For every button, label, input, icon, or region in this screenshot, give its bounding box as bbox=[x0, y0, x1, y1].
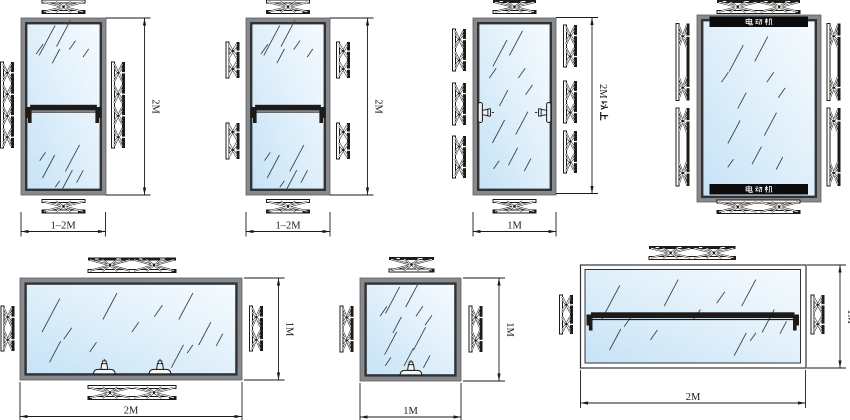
svg-text:2M: 2M bbox=[150, 99, 161, 114]
svg-text:1M: 1M bbox=[403, 406, 418, 417]
svg-text:1M: 1M bbox=[504, 322, 515, 337]
svg-text:2M: 2M bbox=[373, 99, 384, 114]
svg-text:1M: 1M bbox=[845, 309, 850, 324]
svg-text:2M: 2M bbox=[686, 392, 701, 403]
svg-text:2M: 2M bbox=[597, 84, 608, 99]
svg-text:2M: 2M bbox=[124, 406, 139, 417]
svg-text:1M: 1M bbox=[507, 221, 522, 232]
svg-text:1–2M: 1–2M bbox=[275, 221, 301, 232]
svg-text:1–2M: 1–2M bbox=[51, 221, 77, 232]
svg-text:1M: 1M bbox=[284, 322, 295, 337]
